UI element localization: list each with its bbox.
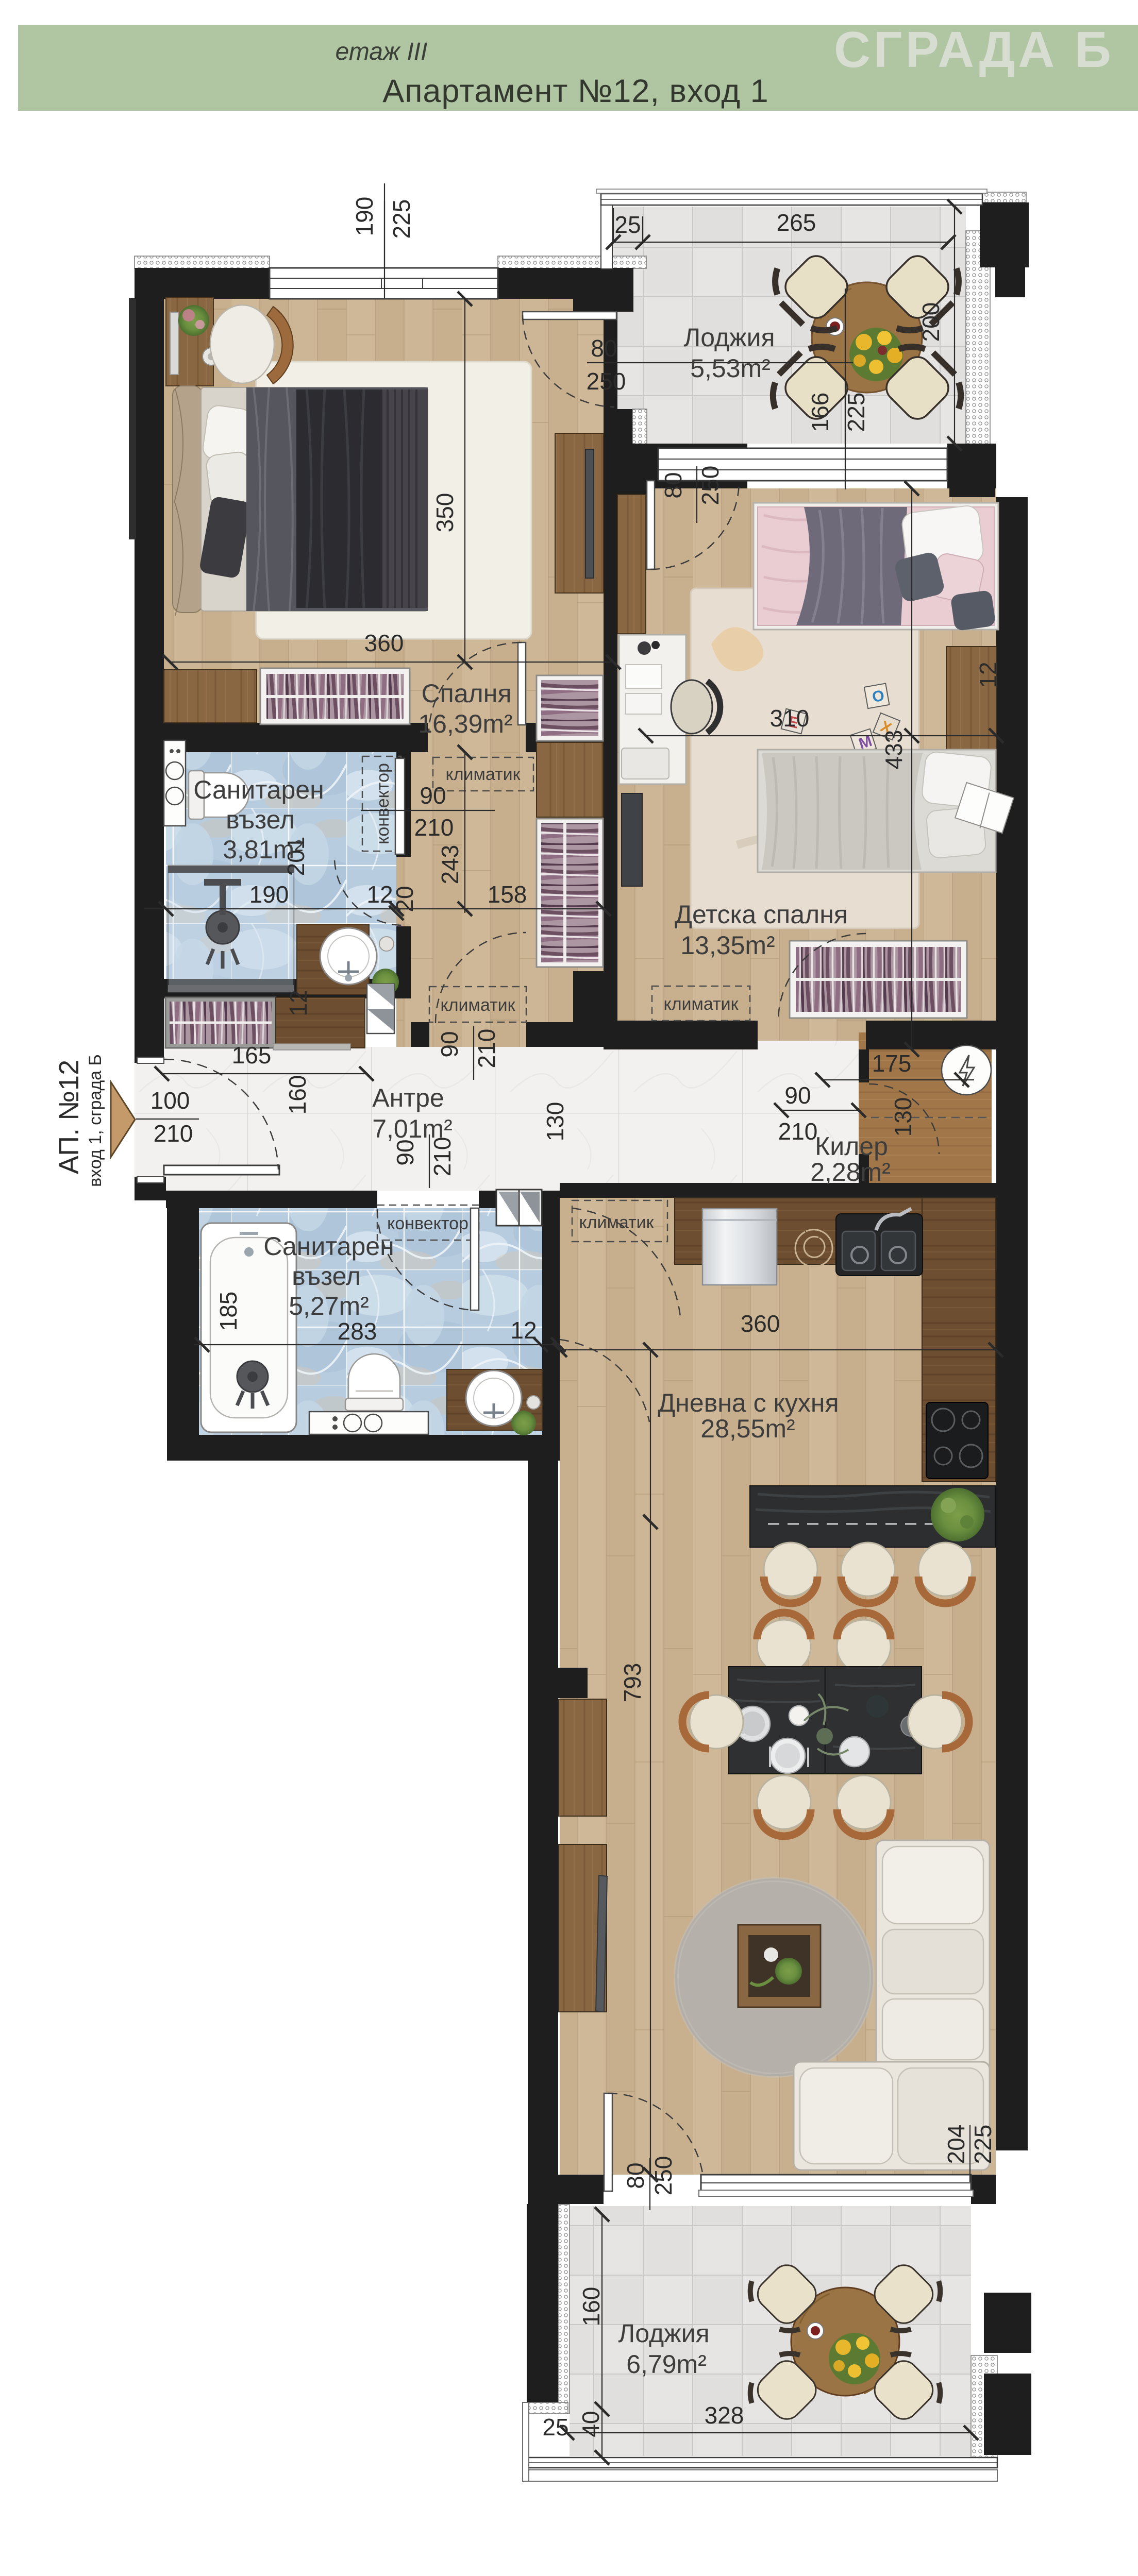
svg-text:7,01m²: 7,01m² <box>372 1114 453 1143</box>
svg-text:433: 433 <box>880 730 907 770</box>
svg-text:166: 166 <box>807 393 833 432</box>
svg-text:130: 130 <box>890 1097 916 1137</box>
svg-text:АП. №12: АП. №12 <box>54 1060 85 1174</box>
svg-text:328: 328 <box>705 2402 744 2429</box>
svg-text:5,53m²: 5,53m² <box>690 354 771 383</box>
svg-text:350: 350 <box>431 493 458 533</box>
svg-text:90: 90 <box>420 782 446 809</box>
svg-text:12: 12 <box>285 990 312 1016</box>
svg-text:12: 12 <box>510 1317 537 1344</box>
svg-text:185: 185 <box>215 1292 242 1331</box>
svg-text:климатик: климатик <box>663 994 739 1014</box>
svg-text:793: 793 <box>619 1663 646 1703</box>
svg-text:225: 225 <box>969 2125 996 2164</box>
svg-text:възел: възел <box>292 1262 361 1291</box>
svg-text:310: 310 <box>770 705 810 732</box>
svg-text:80: 80 <box>622 2162 649 2189</box>
svg-text:Лоджия: Лоджия <box>683 323 775 352</box>
svg-text:Спалня: Спалня <box>422 679 512 708</box>
svg-text:3,81m²: 3,81m² <box>223 835 303 864</box>
svg-text:283: 283 <box>338 1318 377 1345</box>
svg-text:вход 1, сграда Б: вход 1, сграда Б <box>86 1054 105 1187</box>
svg-text:климатик: климатик <box>440 995 515 1015</box>
svg-text:12: 12 <box>366 881 393 908</box>
svg-text:16,39m²: 16,39m² <box>418 709 512 738</box>
svg-text:158: 158 <box>488 881 527 908</box>
svg-text:225: 225 <box>388 199 415 239</box>
svg-text:етаж III: етаж III <box>336 38 428 65</box>
svg-text:90: 90 <box>392 1139 419 1165</box>
svg-text:210: 210 <box>778 1118 818 1145</box>
svg-text:190: 190 <box>351 197 378 236</box>
svg-text:210: 210 <box>154 1120 193 1147</box>
svg-text:12: 12 <box>975 662 1001 688</box>
svg-text:Детска спалня: Детска спалня <box>675 900 848 929</box>
svg-text:175: 175 <box>872 1050 912 1077</box>
svg-text:225: 225 <box>843 393 869 432</box>
svg-text:160: 160 <box>284 1075 311 1115</box>
svg-text:Лоджия: Лоджия <box>618 2319 709 2348</box>
svg-text:Дневна с кухня: Дневна с кухня <box>658 1388 839 1417</box>
svg-text:250: 250 <box>697 466 724 505</box>
svg-text:Апартамент №12, вход 1: Апартамент №12, вход 1 <box>382 73 768 109</box>
svg-text:210: 210 <box>414 814 454 841</box>
svg-text:конвектор: конвектор <box>373 763 393 844</box>
svg-text:210: 210 <box>473 1029 500 1069</box>
svg-text:250: 250 <box>587 368 626 395</box>
svg-text:5,27m²: 5,27m² <box>289 1292 369 1320</box>
svg-text:360: 360 <box>741 1310 780 1337</box>
svg-text:80: 80 <box>660 472 687 498</box>
svg-text:204: 204 <box>943 2125 969 2164</box>
svg-text:възел: възел <box>226 805 295 834</box>
svg-text:190: 190 <box>249 881 289 908</box>
svg-text:243: 243 <box>437 845 463 885</box>
svg-text:6,79m²: 6,79m² <box>626 2350 707 2379</box>
svg-text:Санитарен: Санитарен <box>263 1232 394 1261</box>
svg-text:25: 25 <box>614 211 641 238</box>
svg-text:90: 90 <box>784 1082 811 1109</box>
svg-text:100: 100 <box>150 1087 190 1114</box>
svg-text:Килер: Килер <box>815 1132 888 1161</box>
svg-text:Антре: Антре <box>372 1083 444 1112</box>
svg-text:28,55m²: 28,55m² <box>700 1414 795 1443</box>
svg-text:265: 265 <box>777 209 816 236</box>
svg-text:климатик: климатик <box>445 765 521 784</box>
svg-text:160: 160 <box>578 2287 605 2327</box>
svg-text:165: 165 <box>232 1042 272 1069</box>
svg-text:250: 250 <box>650 2156 677 2196</box>
svg-text:200: 200 <box>917 302 944 342</box>
svg-text:20: 20 <box>391 886 418 912</box>
svg-text:360: 360 <box>364 630 404 656</box>
svg-text:25: 25 <box>542 2414 568 2441</box>
svg-text:90: 90 <box>436 1031 463 1057</box>
svg-text:13,35m²: 13,35m² <box>680 931 775 960</box>
svg-text:2,28m²: 2,28m² <box>810 1158 891 1187</box>
svg-text:СГРАДА Б: СГРАДА Б <box>834 21 1114 78</box>
svg-text:130: 130 <box>542 1102 568 1142</box>
svg-text:Санитарен: Санитарен <box>193 775 324 804</box>
svg-text:80: 80 <box>591 335 617 362</box>
svg-text:40: 40 <box>577 2411 604 2437</box>
svg-text:конвектор: конвектор <box>387 1214 468 1233</box>
